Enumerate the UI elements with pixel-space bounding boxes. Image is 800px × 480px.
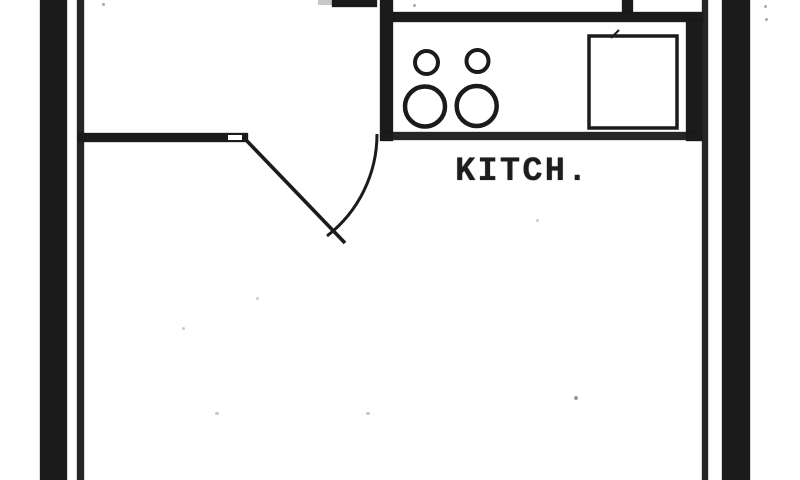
scan-speck [413, 4, 416, 7]
door-leaf [247, 141, 345, 243]
scan-speck [215, 412, 219, 415]
scan-speck [574, 396, 578, 400]
scan-speck [182, 327, 185, 330]
sink-basin-icon [589, 36, 677, 128]
scan-speck [102, 3, 105, 6]
stove-burner-large-right-icon [457, 86, 497, 126]
scan-speck [765, 18, 768, 21]
room-label-kitchen: KITCH. [455, 153, 589, 191]
stove-burner-small-left-icon [415, 51, 438, 74]
scan-speck [366, 412, 370, 415]
scan-speck [256, 297, 259, 300]
fixtures-layer [0, 0, 800, 480]
door-swing-arc [327, 134, 377, 236]
scan-speck [536, 219, 539, 222]
floorplan-canvas: KITCH. [0, 0, 800, 480]
scan-speck [764, 5, 767, 8]
stove-burner-small-right-icon [467, 50, 489, 72]
stove-burner-large-left-icon [405, 87, 445, 127]
